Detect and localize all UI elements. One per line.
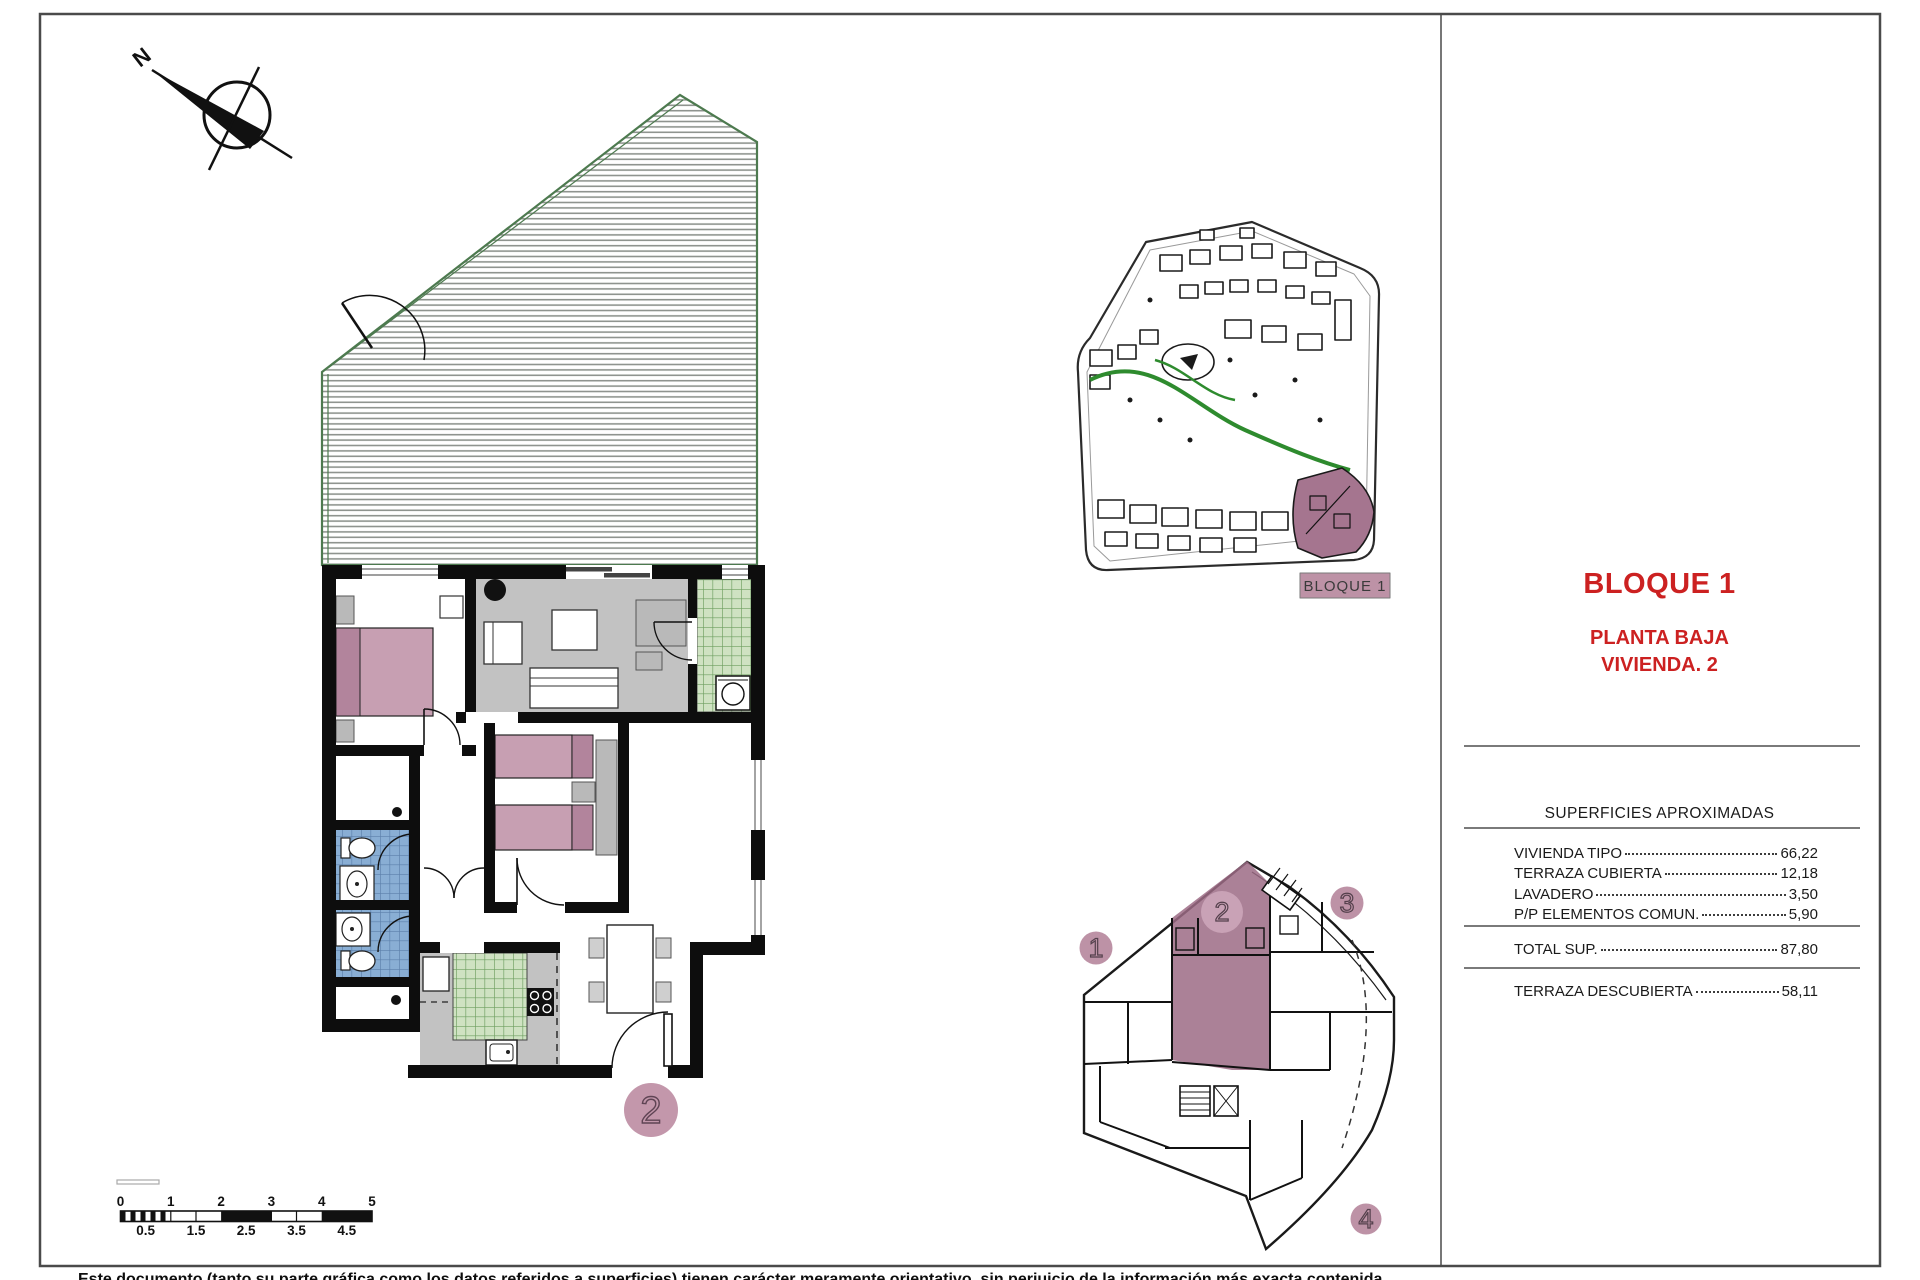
unit-badge-label: 2 xyxy=(640,1090,661,1132)
bed-pillow xyxy=(572,805,593,850)
fridge xyxy=(423,957,449,991)
row-value: 12,18 xyxy=(1780,865,1818,882)
dotted-leader xyxy=(1625,853,1777,855)
svg-text:5: 5 xyxy=(368,1194,376,1209)
stair-core xyxy=(1180,1086,1238,1116)
dotted-leader xyxy=(1665,873,1778,875)
areas-table-extra: TERRAZA DESCUBIERTA 58,11 xyxy=(1514,983,1818,1003)
svg-text:0.5: 0.5 xyxy=(136,1223,155,1238)
wardrobe xyxy=(596,740,617,855)
areas-table: VIVIENDA TIPO 66,22 TERRAZA CUBIERTA 12,… xyxy=(1514,845,1818,927)
scale-bar: 0 1 2 3 4 5 0.5 1.5 2.5 3.5 4.5 xyxy=(117,1180,377,1238)
svg-text:3.5: 3.5 xyxy=(287,1223,306,1238)
chair xyxy=(656,982,671,1002)
twin-bed xyxy=(495,735,572,778)
table-row: VIVIENDA TIPO 66,22 xyxy=(1514,845,1818,865)
table-row: P/P ELEMENTOS COMUN. 5,90 xyxy=(1514,906,1818,926)
table-row: LAVADERO 3,50 xyxy=(1514,886,1818,906)
bed-pillow xyxy=(572,735,593,778)
dotted-leader xyxy=(1696,991,1779,993)
svg-text:2.5: 2.5 xyxy=(237,1223,256,1238)
bedroom-2 xyxy=(495,735,617,855)
block-key-plan: 1 2 3 4 xyxy=(1080,861,1395,1249)
svg-text:2: 2 xyxy=(217,1194,225,1209)
row-value: 5,90 xyxy=(1789,906,1818,923)
svg-text:4: 4 xyxy=(318,1194,326,1209)
kitchen-floor xyxy=(453,953,527,1040)
unit-circle-4: 4 xyxy=(1358,1204,1373,1234)
dining-table xyxy=(607,925,653,1013)
site-plan: BLOQUE 1 xyxy=(1078,222,1390,598)
entrance-door xyxy=(612,1012,672,1068)
column xyxy=(391,995,401,1005)
bedroom-1 xyxy=(336,596,463,742)
column xyxy=(392,807,402,817)
row-value: 3,50 xyxy=(1789,886,1818,903)
twin-bed xyxy=(495,805,572,850)
compass-n-label: N xyxy=(128,42,156,71)
nightstand xyxy=(572,782,595,802)
unit-circle-2: 2 xyxy=(1214,897,1229,927)
row-label: LAVADERO xyxy=(1514,886,1593,903)
svg-text:1: 1 xyxy=(167,1194,175,1209)
slider-pane xyxy=(566,567,612,572)
sofa xyxy=(530,668,618,708)
armchair xyxy=(484,622,522,664)
table-row-total: TOTAL SUP. 87,80 xyxy=(1514,941,1818,961)
unit-circle-1: 1 xyxy=(1088,933,1103,963)
lavadero xyxy=(716,676,750,710)
page-subtitle-unit: VIVIENDA. 2 xyxy=(1441,654,1878,677)
row-label: TERRAZA DESCUBIERTA xyxy=(1514,983,1693,1000)
compass-north-icon: N xyxy=(128,42,292,170)
coffee-table xyxy=(552,610,597,650)
svg-text:0: 0 xyxy=(117,1194,125,1209)
row-label: VIVIENDA TIPO xyxy=(1514,845,1622,862)
dining-area xyxy=(589,925,671,1013)
column xyxy=(484,579,506,601)
plan-sheet: N xyxy=(0,0,1920,1280)
table-row: TERRAZA CUBIERTA 12,18 xyxy=(1514,865,1818,885)
page-subtitle-floor: PLANTA BAJA xyxy=(1441,627,1878,650)
svg-text:3: 3 xyxy=(268,1194,276,1209)
row-value: 66,22 xyxy=(1780,845,1818,862)
divider-line xyxy=(1464,925,1860,927)
bed-pillow xyxy=(336,628,360,716)
page-title: BLOQUE 1 xyxy=(1441,568,1878,601)
row-label: TERRAZA CUBIERTA xyxy=(1514,865,1662,882)
dotted-leader xyxy=(1601,949,1778,951)
svg-text:1.5: 1.5 xyxy=(187,1223,206,1238)
toilet-icon xyxy=(349,838,375,858)
svg-text:4.5: 4.5 xyxy=(337,1223,356,1238)
table-row-terraza: TERRAZA DESCUBIERTA 58,11 xyxy=(1514,983,1818,1003)
row-value: 58,11 xyxy=(1782,983,1818,1000)
disclaimer-text: Este documento (tanto su parte gráfica c… xyxy=(78,1271,1382,1280)
chair xyxy=(589,938,604,958)
slider-pane xyxy=(604,573,650,578)
unit-badge: 2 xyxy=(624,1083,678,1137)
sideboard xyxy=(636,600,686,646)
main-floor-plan: 2 xyxy=(322,95,765,1137)
areas-table-total: TOTAL SUP. 87,80 xyxy=(1514,941,1818,961)
dotted-leader xyxy=(1702,914,1785,916)
dotted-leader xyxy=(1596,894,1785,896)
terrace xyxy=(322,95,757,565)
row-label: P/P ELEMENTOS COMUN. xyxy=(1514,906,1699,923)
unit-circle-3: 3 xyxy=(1339,888,1354,918)
chair xyxy=(656,938,671,958)
row-value: 87,80 xyxy=(1780,941,1818,958)
row-label: TOTAL SUP. xyxy=(1514,941,1598,958)
divider-line xyxy=(1464,745,1860,747)
divider-line xyxy=(1464,967,1860,969)
chair xyxy=(589,982,604,1002)
nightstand xyxy=(440,596,463,618)
toilet-icon xyxy=(349,951,375,971)
site-label: BLOQUE 1 xyxy=(1300,573,1390,598)
divider-line xyxy=(1464,827,1860,829)
site-label-text: BLOQUE 1 xyxy=(1303,578,1386,595)
areas-table-title: SUPERFICIES APROXIMADAS xyxy=(1441,805,1878,823)
